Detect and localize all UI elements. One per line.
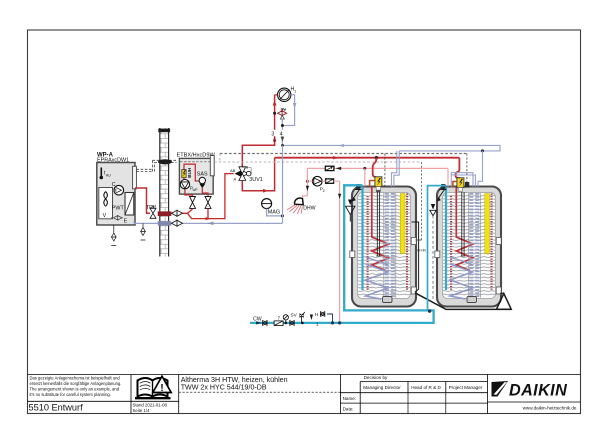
svg-text:Project Manager: Project Manager — [449, 385, 483, 390]
svg-text:Seite 1/4: Seite 1/4 — [133, 408, 151, 413]
svg-text:AU: AU — [106, 174, 111, 178]
svg-text:TWW 2x HYC 544/19/0-DB: TWW 2x HYC 544/19/0-DB — [181, 384, 267, 392]
svg-text:it's no substitute for careful: it's no substitute for careful system pl… — [30, 392, 111, 397]
svg-text:5510 Entwurf: 5510 Entwurf — [29, 403, 84, 413]
svg-text:Das gezeigte Anlagenschema ist: Das gezeigte Anlagenschema ist beispielh… — [30, 376, 121, 381]
svg-text:B: B — [246, 164, 249, 169]
svg-text:H: H — [315, 312, 318, 317]
svg-text:E: E — [124, 218, 128, 224]
svg-text:Name:: Name: — [343, 396, 357, 401]
svg-text:www.daikin-heiztechnik.de: www.daikin-heiztechnik.de — [523, 406, 577, 411]
svg-text:AB: AB — [230, 168, 236, 173]
svg-text:Decision by: Decision by — [364, 375, 388, 380]
svg-text:The arrangement shown is only: The arrangement shown is only an example… — [30, 386, 120, 391]
svg-text:CW: CW — [253, 316, 262, 322]
svg-text:SV: SV — [291, 312, 298, 317]
svg-text:ersetzt keinesfalls die sorgfä: ersetzt keinesfalls die sorgfältige Anla… — [30, 381, 122, 386]
svg-text:V: V — [103, 213, 107, 219]
svg-text:Altherma 3H HTW, heizen, kühle: Altherma 3H HTW, heizen, kühlen — [181, 376, 288, 384]
svg-text:Date:: Date: — [343, 407, 354, 412]
svg-text:MAG: MAG — [268, 209, 280, 215]
svg-text:3UV1: 3UV1 — [249, 177, 262, 183]
svg-text:PWT: PWT — [112, 206, 125, 212]
svg-text:Stand 2021-01-08: Stand 2021-01-08 — [133, 402, 168, 407]
svg-text:DAIKIN: DAIKIN — [509, 381, 567, 399]
svg-text:Head of R & D: Head of R & D — [411, 385, 441, 390]
svg-text:A: A — [234, 177, 237, 182]
svg-text:3: 3 — [271, 132, 274, 138]
svg-text:1: 1 — [294, 89, 296, 93]
svg-text:1: 1 — [316, 321, 319, 326]
svg-text:C: C — [112, 182, 116, 188]
svg-text:Managing Director: Managing Director — [363, 385, 401, 390]
svg-text:EPRAxcDW1: EPRAxcDW1 — [97, 157, 129, 163]
svg-text:DHW: DHW — [303, 206, 315, 212]
svg-text:WP: WP — [193, 188, 198, 192]
svg-text:4: 4 — [280, 132, 283, 138]
svg-text:BUH: BUH — [187, 167, 192, 178]
svg-text:7: 7 — [278, 315, 281, 320]
svg-text:Z: Z — [323, 189, 325, 193]
svg-text:SAS: SAS — [197, 172, 208, 178]
svg-text:ETBX/HxcD9W: ETBX/HxcD9W — [177, 153, 216, 159]
svg-text:!: ! — [160, 382, 164, 394]
